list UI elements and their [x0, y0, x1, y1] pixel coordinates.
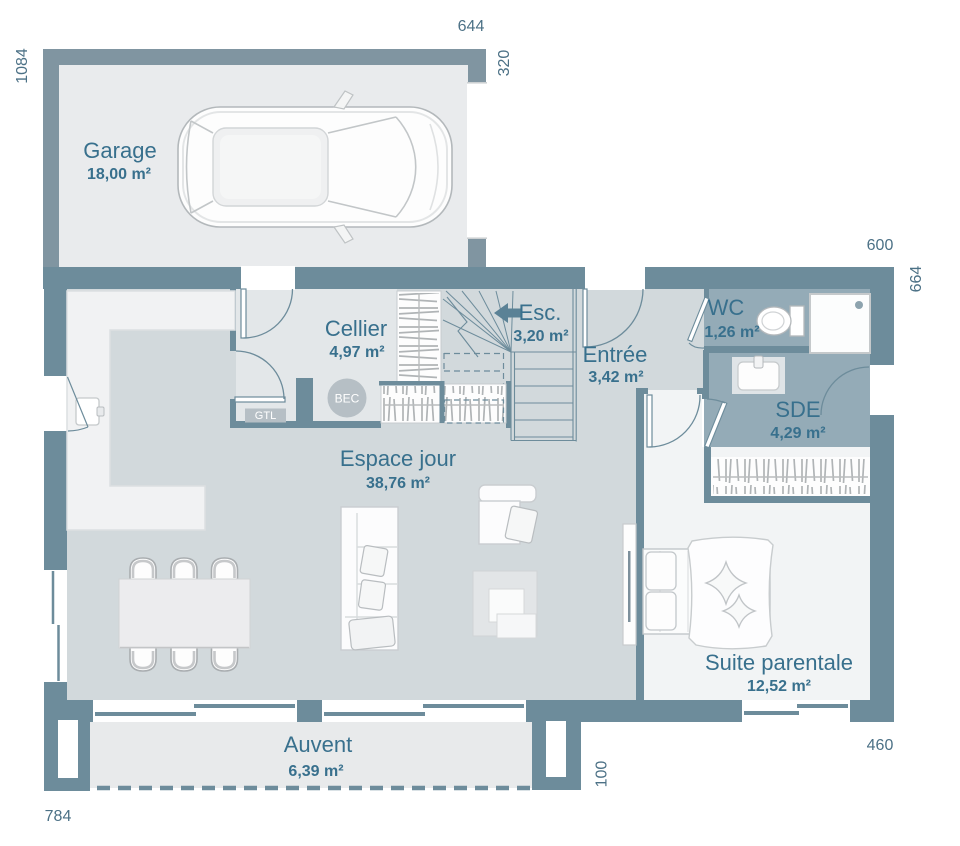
svg-text:Suite parentale: Suite parentale	[705, 650, 853, 675]
svg-text:600: 600	[867, 237, 894, 254]
svg-text:18,00 m²: 18,00 m²	[87, 166, 151, 183]
svg-text:3,42 m²: 3,42 m²	[588, 369, 643, 386]
svg-text:3,20 m²: 3,20 m²	[513, 328, 568, 345]
svg-text:460: 460	[867, 737, 894, 754]
svg-text:4,29 m²: 4,29 m²	[770, 425, 825, 442]
svg-text:Entrée: Entrée	[583, 342, 648, 367]
svg-text:Garage: Garage	[83, 138, 156, 163]
svg-text:GTL: GTL	[255, 410, 276, 422]
svg-text:4,97 m²: 4,97 m²	[329, 344, 384, 361]
svg-text:1084: 1084	[14, 48, 31, 84]
svg-text:Cellier: Cellier	[325, 316, 387, 341]
svg-text:1,26 m²: 1,26 m²	[704, 324, 759, 341]
svg-text:WC: WC	[708, 295, 745, 320]
svg-text:784: 784	[45, 808, 72, 825]
svg-text:Espace jour: Espace jour	[340, 446, 456, 471]
svg-text:Auvent: Auvent	[284, 732, 353, 757]
svg-text:12,52 m²: 12,52 m²	[747, 678, 811, 695]
svg-text:Esc.: Esc.	[519, 300, 562, 325]
svg-text:SDE: SDE	[775, 397, 820, 422]
svg-text:664: 664	[908, 266, 925, 293]
svg-text:6,39 m²: 6,39 m²	[288, 763, 343, 780]
svg-text:644: 644	[458, 18, 485, 35]
svg-text:320: 320	[496, 50, 513, 77]
svg-text:38,76 m²: 38,76 m²	[366, 475, 430, 492]
svg-text:BEC: BEC	[335, 392, 360, 406]
svg-text:100: 100	[594, 761, 611, 788]
